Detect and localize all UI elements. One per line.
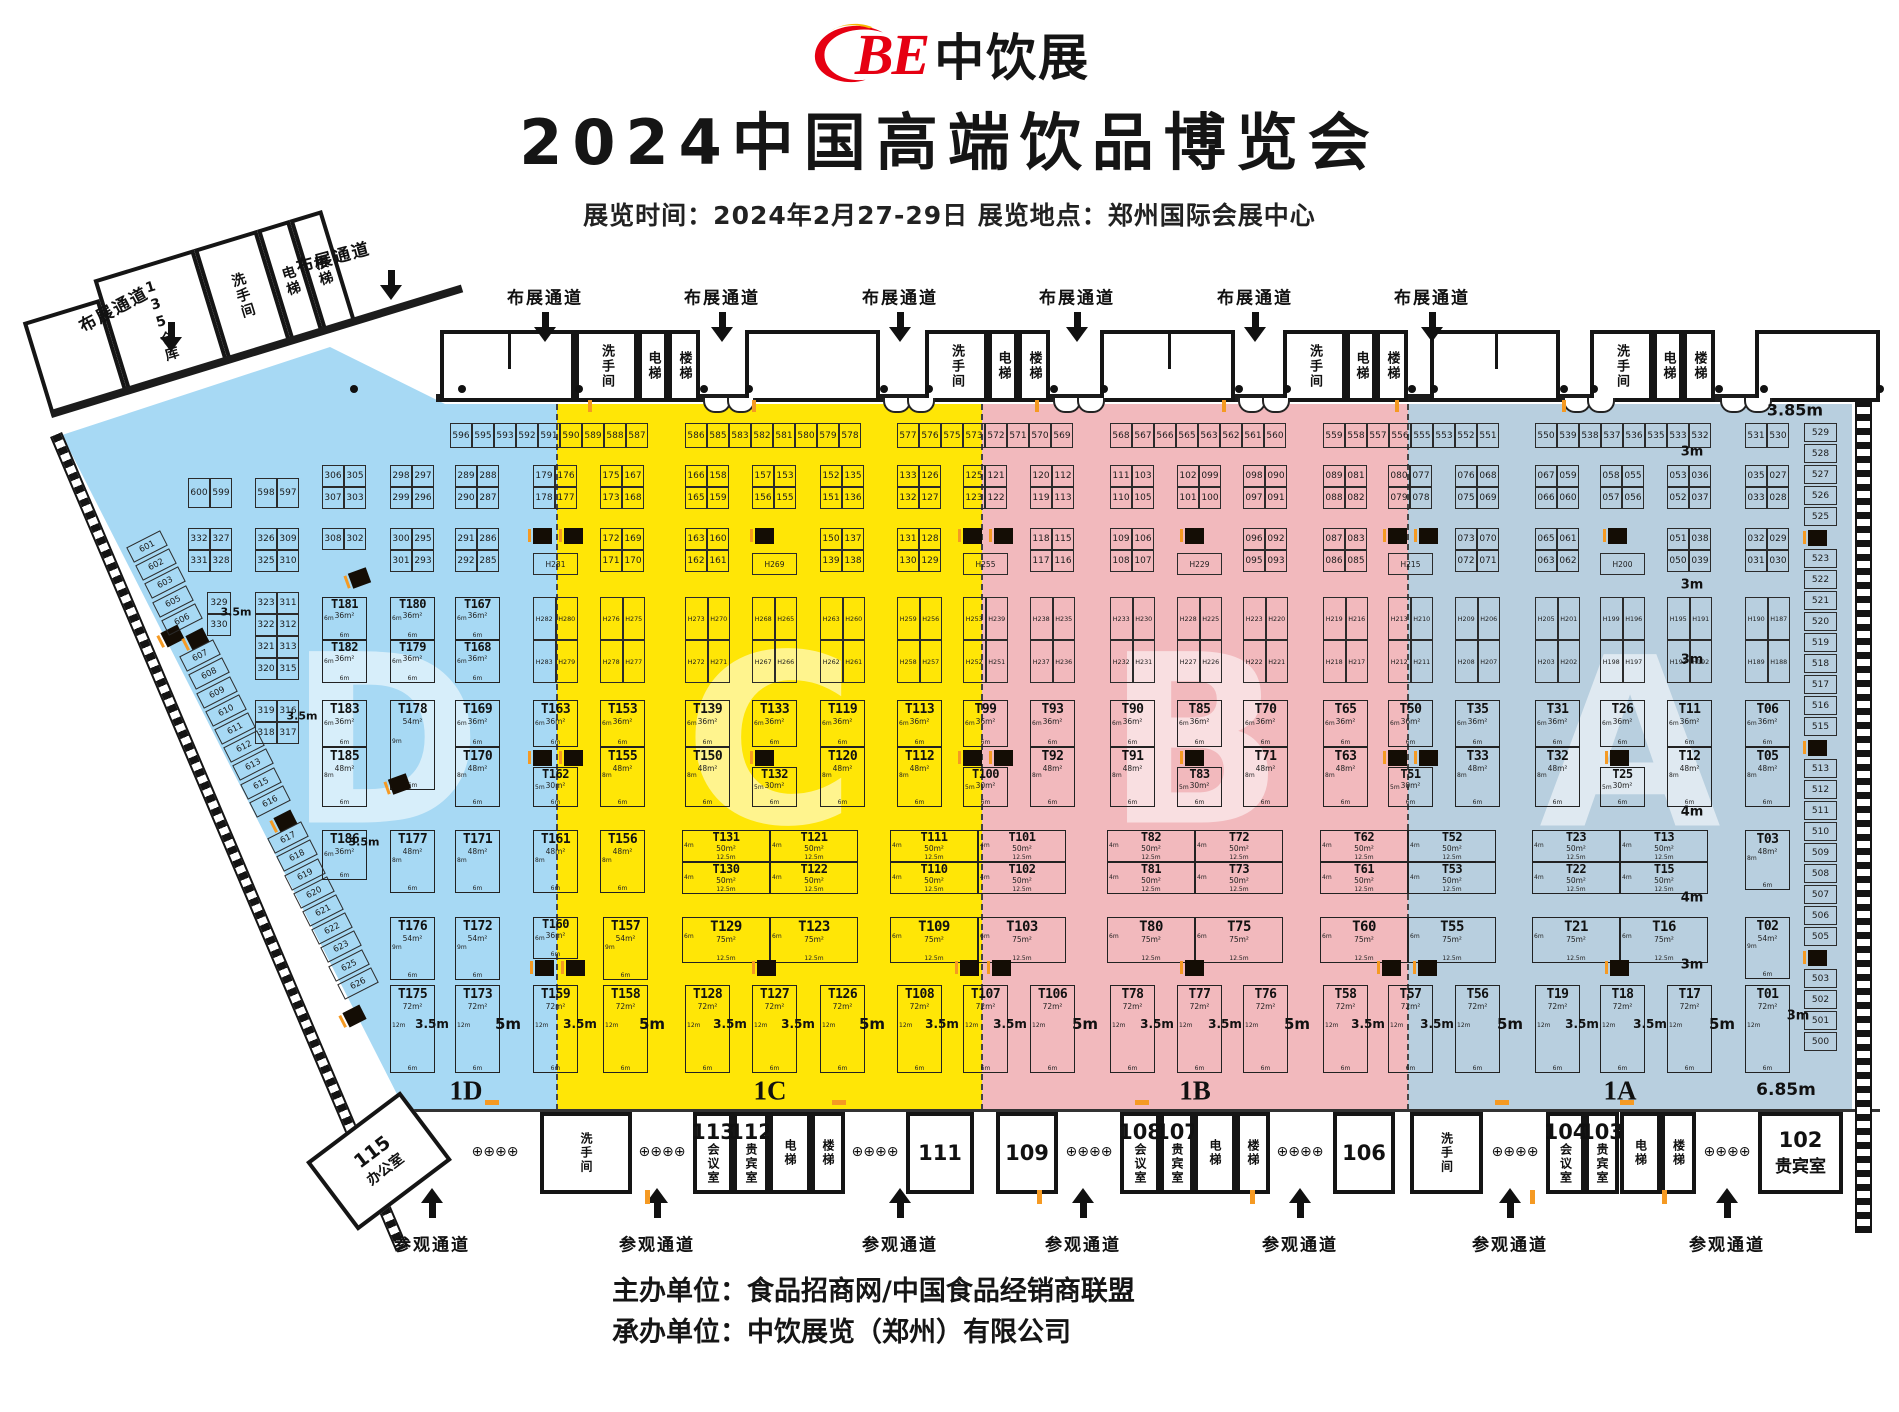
dimension-label: 6.85m [1756, 1080, 1816, 1100]
room-label: 会议室 [1134, 1143, 1146, 1185]
t-booth: T5250m²4m12.5m [1408, 830, 1496, 862]
room-label: 贵宾室 [1596, 1143, 1608, 1185]
booth-quad-row: 323311 [255, 592, 299, 614]
corridor-label-top: 布展通道 [507, 284, 583, 309]
booth-cell: H199 [1600, 597, 1623, 640]
booth-quad-row: 120112 [1030, 465, 1074, 487]
t-booth: T6150m²4m12.5m [1320, 862, 1408, 894]
t-booth: T15336m²6m6m [600, 700, 645, 747]
booth-quad-row: 072071 [1455, 550, 1499, 572]
direction-arrow-icon [1421, 312, 1443, 346]
booth-quad-row: 089081 [1323, 465, 1367, 487]
booth-cell: 158 [707, 465, 729, 487]
booth-strip: 586585583582581580579578 [685, 423, 861, 448]
booth-quad-row: 150137 [820, 528, 864, 550]
direction-arrow-icon [1499, 1188, 1521, 1222]
pillar-dot [1100, 385, 1108, 393]
booth-cell: 066 [1535, 487, 1557, 509]
pillar-dot [1408, 385, 1416, 393]
booth-quad-row: 151136 [820, 487, 864, 509]
booth-cell: H261 [843, 640, 866, 683]
turnstile-icon: ⊕⊕⊕⊕ [472, 1144, 519, 1160]
booth-cell: 531 [1745, 423, 1767, 448]
room-label: 楼梯 [1386, 351, 1399, 381]
booth-strip: 568567566565563562561560 [1110, 423, 1286, 448]
turnstile-icon: ⊕⊕⊕⊕ [1704, 1144, 1751, 1160]
t-booth: T10975m²6m12.5m [890, 917, 978, 963]
booth-cell: 509 [1804, 843, 1837, 862]
booth-cell: 537 [1601, 423, 1623, 448]
booth-cell: H281 [533, 553, 578, 575]
booth-cell: H275 [623, 597, 646, 640]
booth-quad-row: 095093 [1243, 550, 1287, 572]
direction-arrow-icon [380, 270, 402, 304]
booth-quad-row: 322312 [255, 614, 299, 636]
dimension-label: 3.5m [349, 836, 380, 849]
t-booth: T17748m²8m6m [390, 830, 435, 893]
booth-cell: 326 [255, 528, 277, 550]
door-tick [1620, 1100, 1634, 1105]
door-tick [1135, 1100, 1149, 1105]
booth-cell: 051 [1667, 528, 1689, 550]
room-106: 106 [1333, 1112, 1395, 1194]
booth-cell: H189 [1745, 640, 1768, 683]
t-booth: T18548m²8m6m [322, 747, 367, 807]
booth-cell: 111 [1110, 465, 1132, 487]
booth-cell: 567 [1132, 423, 1154, 448]
room-number: 112 [729, 1121, 773, 1143]
door-tick [1530, 1190, 1535, 1204]
booth-cell: H207 [1478, 640, 1501, 683]
booth-cell: H217 [1346, 640, 1369, 683]
booth-cell: 502 [1804, 990, 1837, 1009]
room-楼梯: 楼梯 [1661, 1112, 1696, 1194]
booth-cell: 101 [1177, 487, 1199, 509]
corridor-label-top: 布展通道 [1217, 284, 1293, 309]
booth-quad-row: 088082 [1323, 487, 1367, 509]
t-booth: T16148m²8m6m [533, 830, 578, 893]
right-wall [1855, 398, 1872, 1233]
booth-cell: 589 [582, 423, 604, 448]
booth-cell: 322 [255, 614, 277, 636]
t-booth: T15754m²9m6m [603, 917, 648, 980]
booth-cell: H202 [1558, 640, 1581, 683]
t-booth: T2175m²6m12.5m [1532, 917, 1620, 963]
h-booth-quad: H273H270H272H271 [685, 597, 730, 683]
booth-quad-row: 057056 [1600, 487, 1644, 509]
dimension-label: 3.5m [1351, 1017, 1385, 1031]
booth-cell: 503 [1804, 969, 1837, 988]
booth-cell: 087 [1323, 528, 1345, 550]
dimension-label: 3m [1681, 578, 1704, 593]
t-booth: T10375m²6m12.5m [978, 917, 1066, 963]
booth-cell: 161 [707, 550, 729, 572]
t-booth: T15548m²8m6m [600, 747, 645, 807]
dimension-label: 3.5m [221, 606, 252, 619]
booth-cell: H215 [1388, 553, 1433, 575]
booth-cell: H187 [1768, 597, 1791, 640]
booth-cell: H257 [920, 640, 943, 683]
t-booth: T1350m²4m12.5m [1620, 830, 1708, 862]
booth-cell: 593 [494, 423, 516, 448]
corridor-label-top: 布展通道 [1394, 284, 1470, 309]
booth-cell: 292 [455, 550, 477, 572]
booth-cell: 582 [751, 423, 773, 448]
booth-cell: H213 [1388, 597, 1411, 640]
booth-cell: H263 [820, 597, 843, 640]
occupied-marker [1610, 960, 1629, 976]
booth-cell: 097 [1243, 487, 1265, 509]
t-booth: T18236m²6m6m [322, 640, 367, 683]
booth-cell: 079 [1388, 487, 1410, 509]
t-booth: T2350m²4m12.5m [1532, 830, 1620, 862]
booth-cell: 328 [210, 550, 232, 572]
corridor-label-top: 布展通道 [684, 284, 760, 309]
t-booth: T18336m²6m6m [322, 700, 367, 747]
t-booth: T1136m²6m6m [1667, 700, 1712, 747]
dimension-label: 3.5m [1140, 1017, 1174, 1031]
direction-arrow-icon [711, 312, 733, 346]
booth-quad-row: 123122 [963, 487, 1007, 509]
room-label: 楼梯 [1028, 351, 1041, 381]
booth-strip: 590589588587 [560, 423, 648, 448]
booth-cell: 136 [842, 487, 864, 509]
t-booth: T17372m²12m6m [455, 985, 500, 1073]
occupied-marker [1419, 528, 1438, 544]
zone-label: 1B [1179, 1076, 1211, 1107]
booth-cell: H206 [1478, 597, 1501, 640]
booth-quad-row: 171170 [600, 550, 644, 572]
t-booth: T0636m²6m6m [1745, 700, 1790, 747]
booth-cell: 117 [1030, 550, 1052, 572]
dimension-label: 3.5m [1208, 1017, 1242, 1031]
booth-quad-row: 307303 [322, 487, 366, 509]
room-label: 洗手间 [1615, 344, 1628, 389]
booth-cell: 568 [1110, 423, 1132, 448]
booth-quad-row: 087083 [1323, 528, 1367, 550]
booth-cell: 570 [1029, 423, 1051, 448]
booth-quad-row: 131128 [897, 528, 941, 550]
booth-quad-row: 332327 [188, 528, 232, 550]
room-电梯: 电梯 [1194, 1112, 1236, 1194]
dimension-label: 3.5m [925, 1017, 959, 1031]
booth-cell: 105 [1132, 487, 1154, 509]
room-number: 109 [1005, 1142, 1049, 1164]
t-booth: T9148m²8m6m [1110, 747, 1155, 807]
booth-cell: 138 [842, 550, 864, 572]
dimension-label: 3.5m [1633, 1017, 1667, 1031]
booth-cell: 029 [1767, 528, 1789, 550]
occupied-marker [994, 750, 1013, 766]
booth-cell: 315 [277, 658, 299, 680]
booth-quad-row: 325310 [255, 550, 299, 572]
booth-cell: 325 [255, 550, 277, 572]
booth-cell: 536 [1623, 423, 1645, 448]
turnstile-icon: ⊕⊕⊕⊕ [1492, 1144, 1539, 1160]
t-booth: T12048m²8m6m [820, 747, 865, 807]
booth-cell: 062 [1557, 550, 1579, 572]
booth-cell: 052 [1667, 487, 1689, 509]
booth-cell: 113 [1052, 487, 1074, 509]
occupied-marker [1610, 750, 1629, 766]
booth-cell: 078 [1410, 487, 1432, 509]
booth-cell: H227 [1177, 640, 1200, 683]
room-label: 电梯 [647, 351, 660, 381]
booth-cell: H282 [533, 597, 556, 640]
booth-cell: 309 [277, 528, 299, 550]
t-booth: T6075m²6m12.5m [1320, 917, 1408, 963]
room-label: 贵宾室 [1171, 1143, 1183, 1185]
booth-quad-row: 308302 [322, 528, 366, 550]
booth-cell: 576 [919, 423, 941, 448]
t-booth: T3136m²6m6m [1535, 700, 1580, 747]
booth-cell: H190 [1745, 597, 1768, 640]
booth-cell: 310 [277, 550, 299, 572]
h-booth-quad: H223H220H222H221 [1243, 597, 1288, 683]
t-booth: T16936m²6m6m [455, 700, 500, 747]
dimension-label: 5m [859, 1015, 885, 1033]
booth-cell: 076 [1455, 465, 1477, 487]
booth-quad-row: 086085 [1323, 550, 1367, 572]
booth-cell: 300 [390, 528, 412, 550]
booth-cell: 106 [1132, 528, 1154, 550]
direction-arrow-icon [534, 312, 556, 346]
booth-cell: 093 [1265, 550, 1287, 572]
booth-cell: H219 [1323, 597, 1346, 640]
booth-cell: 569 [1051, 423, 1073, 448]
t-booth: T13230m²5m6m [752, 767, 797, 807]
h-booth-quad: H282H280H283H279 [533, 597, 578, 683]
t-booth: T1248m²8m6m [1667, 747, 1712, 807]
booth-cell: H205 [1535, 597, 1558, 640]
booth-cell: 321 [255, 636, 277, 658]
t-booth: T5575m²6m12.5m [1408, 917, 1496, 963]
booth-cell: 555 [1411, 423, 1433, 448]
booth-cell: 535 [1645, 423, 1667, 448]
booth-cell: 153 [774, 465, 796, 487]
t-booth: T10150m²4m12.5m [978, 830, 1066, 862]
booth-cell: 558 [1345, 423, 1367, 448]
booth-cell: H211 [1411, 640, 1434, 683]
pillar-dot [1283, 385, 1291, 393]
direction-arrow-icon [1289, 1188, 1311, 1222]
booth-cell: 060 [1557, 487, 1579, 509]
booth-cell: H222 [1243, 640, 1266, 683]
corridor-label-top: 布展通道 [1039, 284, 1115, 309]
booth-quad-row: 031030 [1745, 550, 1789, 572]
booth-strip: 577576575573 [897, 423, 985, 448]
booth-cell: 033 [1745, 487, 1767, 509]
booth-cell: H276 [600, 597, 623, 640]
dimension-label: 4m [1681, 805, 1704, 820]
booth-quad-row: 063062 [1535, 550, 1579, 572]
booth-cell: 518 [1804, 654, 1837, 673]
booth-cell: 521 [1804, 591, 1837, 610]
booth-cell: H228 [1177, 597, 1200, 640]
t-booth: T1772m²12m6m [1667, 985, 1712, 1073]
booth-cell: 299 [390, 487, 412, 509]
room-divider [508, 334, 511, 369]
booth-cell: 129 [919, 550, 941, 572]
booth-cell: 058 [1600, 465, 1622, 487]
room-number: 106 [1342, 1142, 1386, 1164]
direction-arrow-icon [889, 312, 911, 346]
booth-cell: 595 [472, 423, 494, 448]
room-label: 楼梯 [1247, 1139, 1259, 1167]
booth-cell: 289 [455, 465, 477, 487]
pillar-dot [1590, 385, 1598, 393]
booth-quad-row: 051038 [1667, 528, 1711, 550]
room-label: 会议室 [707, 1143, 719, 1185]
booth-cell: H220 [1266, 597, 1289, 640]
dimension-label: 5m [1072, 1015, 1098, 1033]
occupied-marker [960, 960, 979, 976]
undertaker-line: 承办单位：中饮展览（郑州）有限公司 [612, 1313, 1135, 1354]
h-booth-quad: H213H210H212H211 [1388, 597, 1433, 683]
occupied-marker [566, 960, 585, 976]
booth-cell: 065 [1535, 528, 1557, 550]
booth-cell: 332 [188, 528, 210, 550]
booth-cell: 098 [1243, 465, 1265, 487]
booth-cell: 515 [1804, 717, 1837, 736]
booth-cell: 308 [322, 528, 344, 550]
booth-cell: 159 [707, 487, 729, 509]
corridor-label-bottom: 参观通道 [619, 1231, 695, 1256]
h-booth-quad: H199H196H198H197 [1600, 597, 1645, 683]
booth-quad-row: 163160 [685, 528, 729, 550]
booth-cell: 171 [600, 550, 622, 572]
dimension-label: 3.5m [287, 710, 318, 723]
booth-quad-row: 298297 [390, 465, 434, 487]
room-楼梯: 楼梯 [1683, 330, 1715, 402]
occupied-marker [1608, 528, 1627, 544]
booth-cell: 530 [1767, 423, 1789, 448]
booth-cell: 128 [919, 528, 941, 550]
booth-quad-row: 065061 [1535, 528, 1579, 550]
room-label: 洗手间 [1441, 1132, 1453, 1174]
booth-cell: H212 [1388, 640, 1411, 683]
booth-cell: H267 [752, 640, 775, 683]
t-booth: T6536m²6m6m [1323, 700, 1368, 747]
booth-cell: 092 [1265, 528, 1287, 550]
dimension-label: 5m [1497, 1015, 1523, 1033]
booth-cell: 588 [604, 423, 626, 448]
booth-cell: 165 [685, 487, 707, 509]
room-111: 111 [906, 1112, 974, 1194]
t-booth: T9336m²6m6m [1030, 700, 1075, 747]
booth-cell: 068 [1477, 465, 1499, 487]
booth-quad-row: 300295 [390, 528, 434, 550]
door-tick [1562, 400, 1566, 412]
booth-cell: 591 [538, 423, 560, 448]
corridor-label-bottom: 参观通道 [1262, 1231, 1338, 1256]
booth-cell: 151 [820, 487, 842, 509]
h-booth-quad: H219H216H218H217 [1323, 597, 1368, 683]
t-booth: T16736m²6m6m [455, 597, 500, 640]
booth-cell: 123 [963, 487, 985, 509]
booth-cell: 178 [533, 487, 555, 509]
pillar-dot [1050, 385, 1058, 393]
room-107: 107贵宾室 [1160, 1112, 1194, 1194]
booth-cell: 169 [622, 528, 644, 550]
room-label: 电梯 [1635, 1139, 1647, 1167]
booth-quad-row: 058055 [1600, 465, 1644, 487]
door-tick [1250, 1190, 1255, 1204]
booth-strip: 559558557556 [1323, 423, 1411, 448]
corridor-label-top: 布展通道 [862, 284, 938, 309]
booth-cell: H223 [1243, 597, 1266, 640]
t-booth: T13336m²6m6m [752, 700, 797, 747]
booth-cell: 130 [897, 550, 919, 572]
booth-cell: 167 [622, 465, 644, 487]
room-102: 102贵宾室 [1758, 1112, 1843, 1194]
booth-quad-row: 098090 [1243, 465, 1287, 487]
t-booth: T13150m²4m12.5m [682, 830, 770, 862]
booth-cell: H283 [533, 640, 556, 683]
booth-cell: 126 [919, 465, 941, 487]
booth-cell: 320 [255, 658, 277, 680]
booth-cell: 516 [1804, 696, 1837, 715]
booth-quad-row: 139138 [820, 550, 864, 572]
t-booth: T8330m²5m6m [1177, 767, 1222, 807]
booth-cell: H255 [963, 553, 1008, 575]
booth-cell: H266 [775, 640, 798, 683]
h-booth-quad: H209H206H208H207 [1455, 597, 1500, 683]
booth-cell: H197 [1623, 640, 1646, 683]
booth-strip: 555553552551 [1411, 423, 1499, 448]
t-booth: T3348m²8m6m [1455, 747, 1500, 807]
room [1100, 330, 1235, 402]
t-booth: T0254m²9m6m [1745, 917, 1790, 979]
h-booth-quad: H268H265H267H266 [752, 597, 797, 683]
booth-cell: 056 [1622, 487, 1644, 509]
booth-cell: 055 [1622, 465, 1644, 487]
booth-cell: 572 [985, 423, 1007, 448]
floor-plan: D1DC1CB1BA1A135仓库洗手间电梯楼梯洗手间电梯楼梯洗手间电梯楼梯洗手… [0, 0, 1899, 1412]
booth-cell: 285 [477, 550, 499, 572]
booth-cell: 500 [1804, 1032, 1837, 1051]
booth-cell: H191 [1690, 597, 1713, 640]
booth-cell: H251 [986, 640, 1009, 683]
room-label: 洗手间 [580, 1132, 592, 1174]
booth-cell: H262 [820, 640, 843, 683]
door-tick [1035, 400, 1039, 412]
turnstile-icon: ⊕⊕⊕⊕ [1277, 1144, 1324, 1160]
booth-cell: 162 [685, 550, 707, 572]
booth-quad-row: 109106 [1110, 528, 1154, 550]
booth-cell: 590 [560, 423, 582, 448]
t-booth: T1550m²4m12.5m [1620, 862, 1708, 894]
booth-cell: 581 [773, 423, 795, 448]
booth-cell: H279 [556, 640, 579, 683]
turnstile-icon: ⊕⊕⊕⊕ [639, 1144, 686, 1160]
booth-cell: 137 [842, 528, 864, 550]
pillar-dot [1715, 385, 1723, 393]
occupied-marker [1388, 750, 1407, 766]
booth-cell: H233 [1110, 597, 1133, 640]
pillar-dot [1235, 385, 1243, 393]
booth-quad-row: 033028 [1745, 487, 1789, 509]
h-booth-quad: H276H275H278H277 [600, 597, 645, 683]
direction-arrow-icon [1716, 1188, 1738, 1222]
dimension-label: 3m [1681, 958, 1704, 973]
t-booth: T7036m²6m6m [1243, 700, 1288, 747]
room-label: 电梯 [997, 351, 1010, 381]
booth-cell: H280 [556, 597, 579, 640]
room-label: 楼梯 [822, 1139, 834, 1167]
booth-quad-row: 101100 [1177, 487, 1221, 509]
booth-cell: 030 [1767, 550, 1789, 572]
